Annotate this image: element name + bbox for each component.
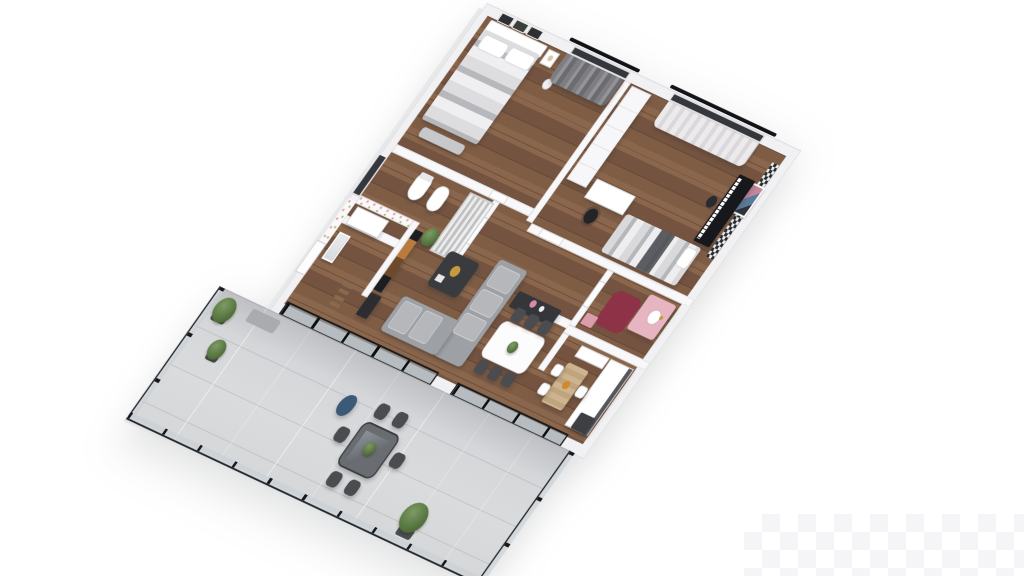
apartment-plan — [117, 0, 825, 576]
floor-plan-render — [0, 0, 1024, 576]
watermark-checkerboard — [744, 514, 1024, 576]
